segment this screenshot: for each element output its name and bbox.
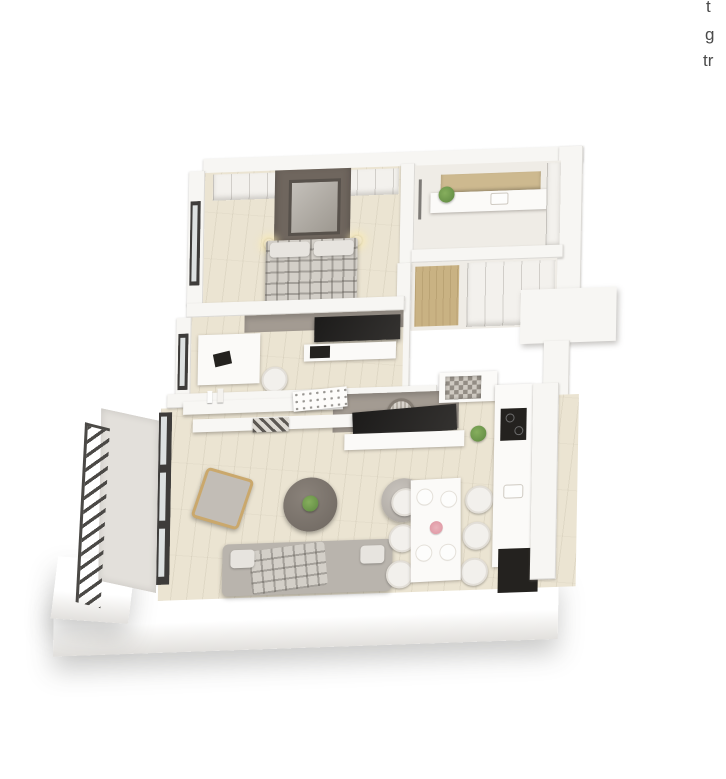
framed-art bbox=[288, 178, 341, 236]
clipped-text-line-1: t bbox=[706, 0, 711, 19]
kitchen-sink bbox=[503, 484, 523, 499]
hallway-wood-mat bbox=[414, 265, 459, 327]
sofa-pillow-left bbox=[230, 549, 254, 568]
right-step-block bbox=[520, 287, 617, 344]
bathroom-wall-cabinet bbox=[546, 163, 561, 248]
office-window bbox=[177, 334, 188, 390]
clipped-text-line-2: g bbox=[705, 22, 714, 47]
decor-vase-1 bbox=[207, 391, 212, 403]
bed-pillow-left bbox=[270, 241, 310, 257]
page: { "page": { "background": "#ffffff", "wi… bbox=[0, 0, 726, 779]
sink-basin bbox=[490, 192, 508, 205]
outer-wall-right-bottom bbox=[530, 383, 559, 580]
bedroom-window bbox=[189, 201, 200, 285]
floorplan-render bbox=[53, 128, 647, 674]
bed-pillow-right bbox=[314, 240, 354, 256]
cooktop bbox=[500, 408, 527, 441]
kitchen-mosaic-backsplash bbox=[445, 375, 481, 399]
office-storage-box bbox=[310, 346, 330, 359]
sofa-pillow-right bbox=[360, 545, 384, 564]
office-tv bbox=[314, 314, 400, 342]
clipped-text-line-3: tr bbox=[703, 48, 713, 73]
plaid-textiles bbox=[253, 417, 289, 432]
decor-vase-2 bbox=[217, 388, 223, 402]
